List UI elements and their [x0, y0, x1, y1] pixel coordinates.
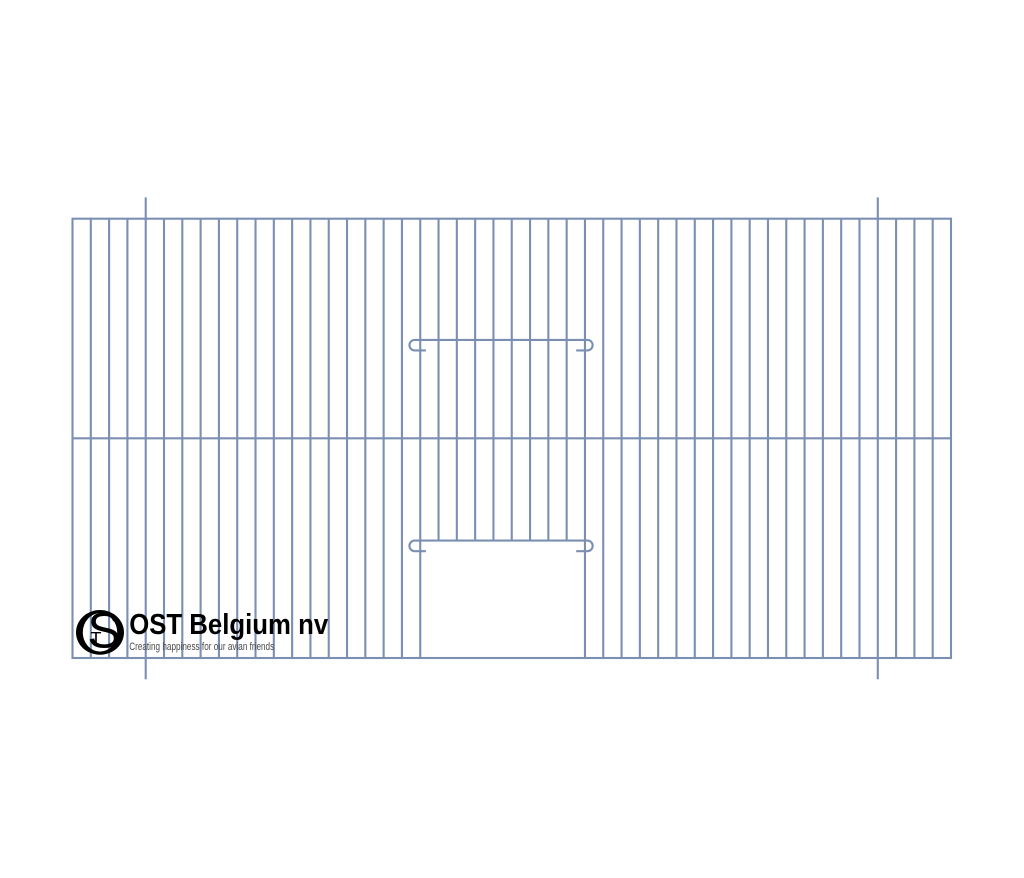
svg-text:Creating happiness for our avi: Creating happiness for our avian friends — [129, 641, 274, 653]
svg-text:T: T — [91, 629, 102, 649]
svg-text:OST Belgium nv: OST Belgium nv — [129, 609, 328, 641]
